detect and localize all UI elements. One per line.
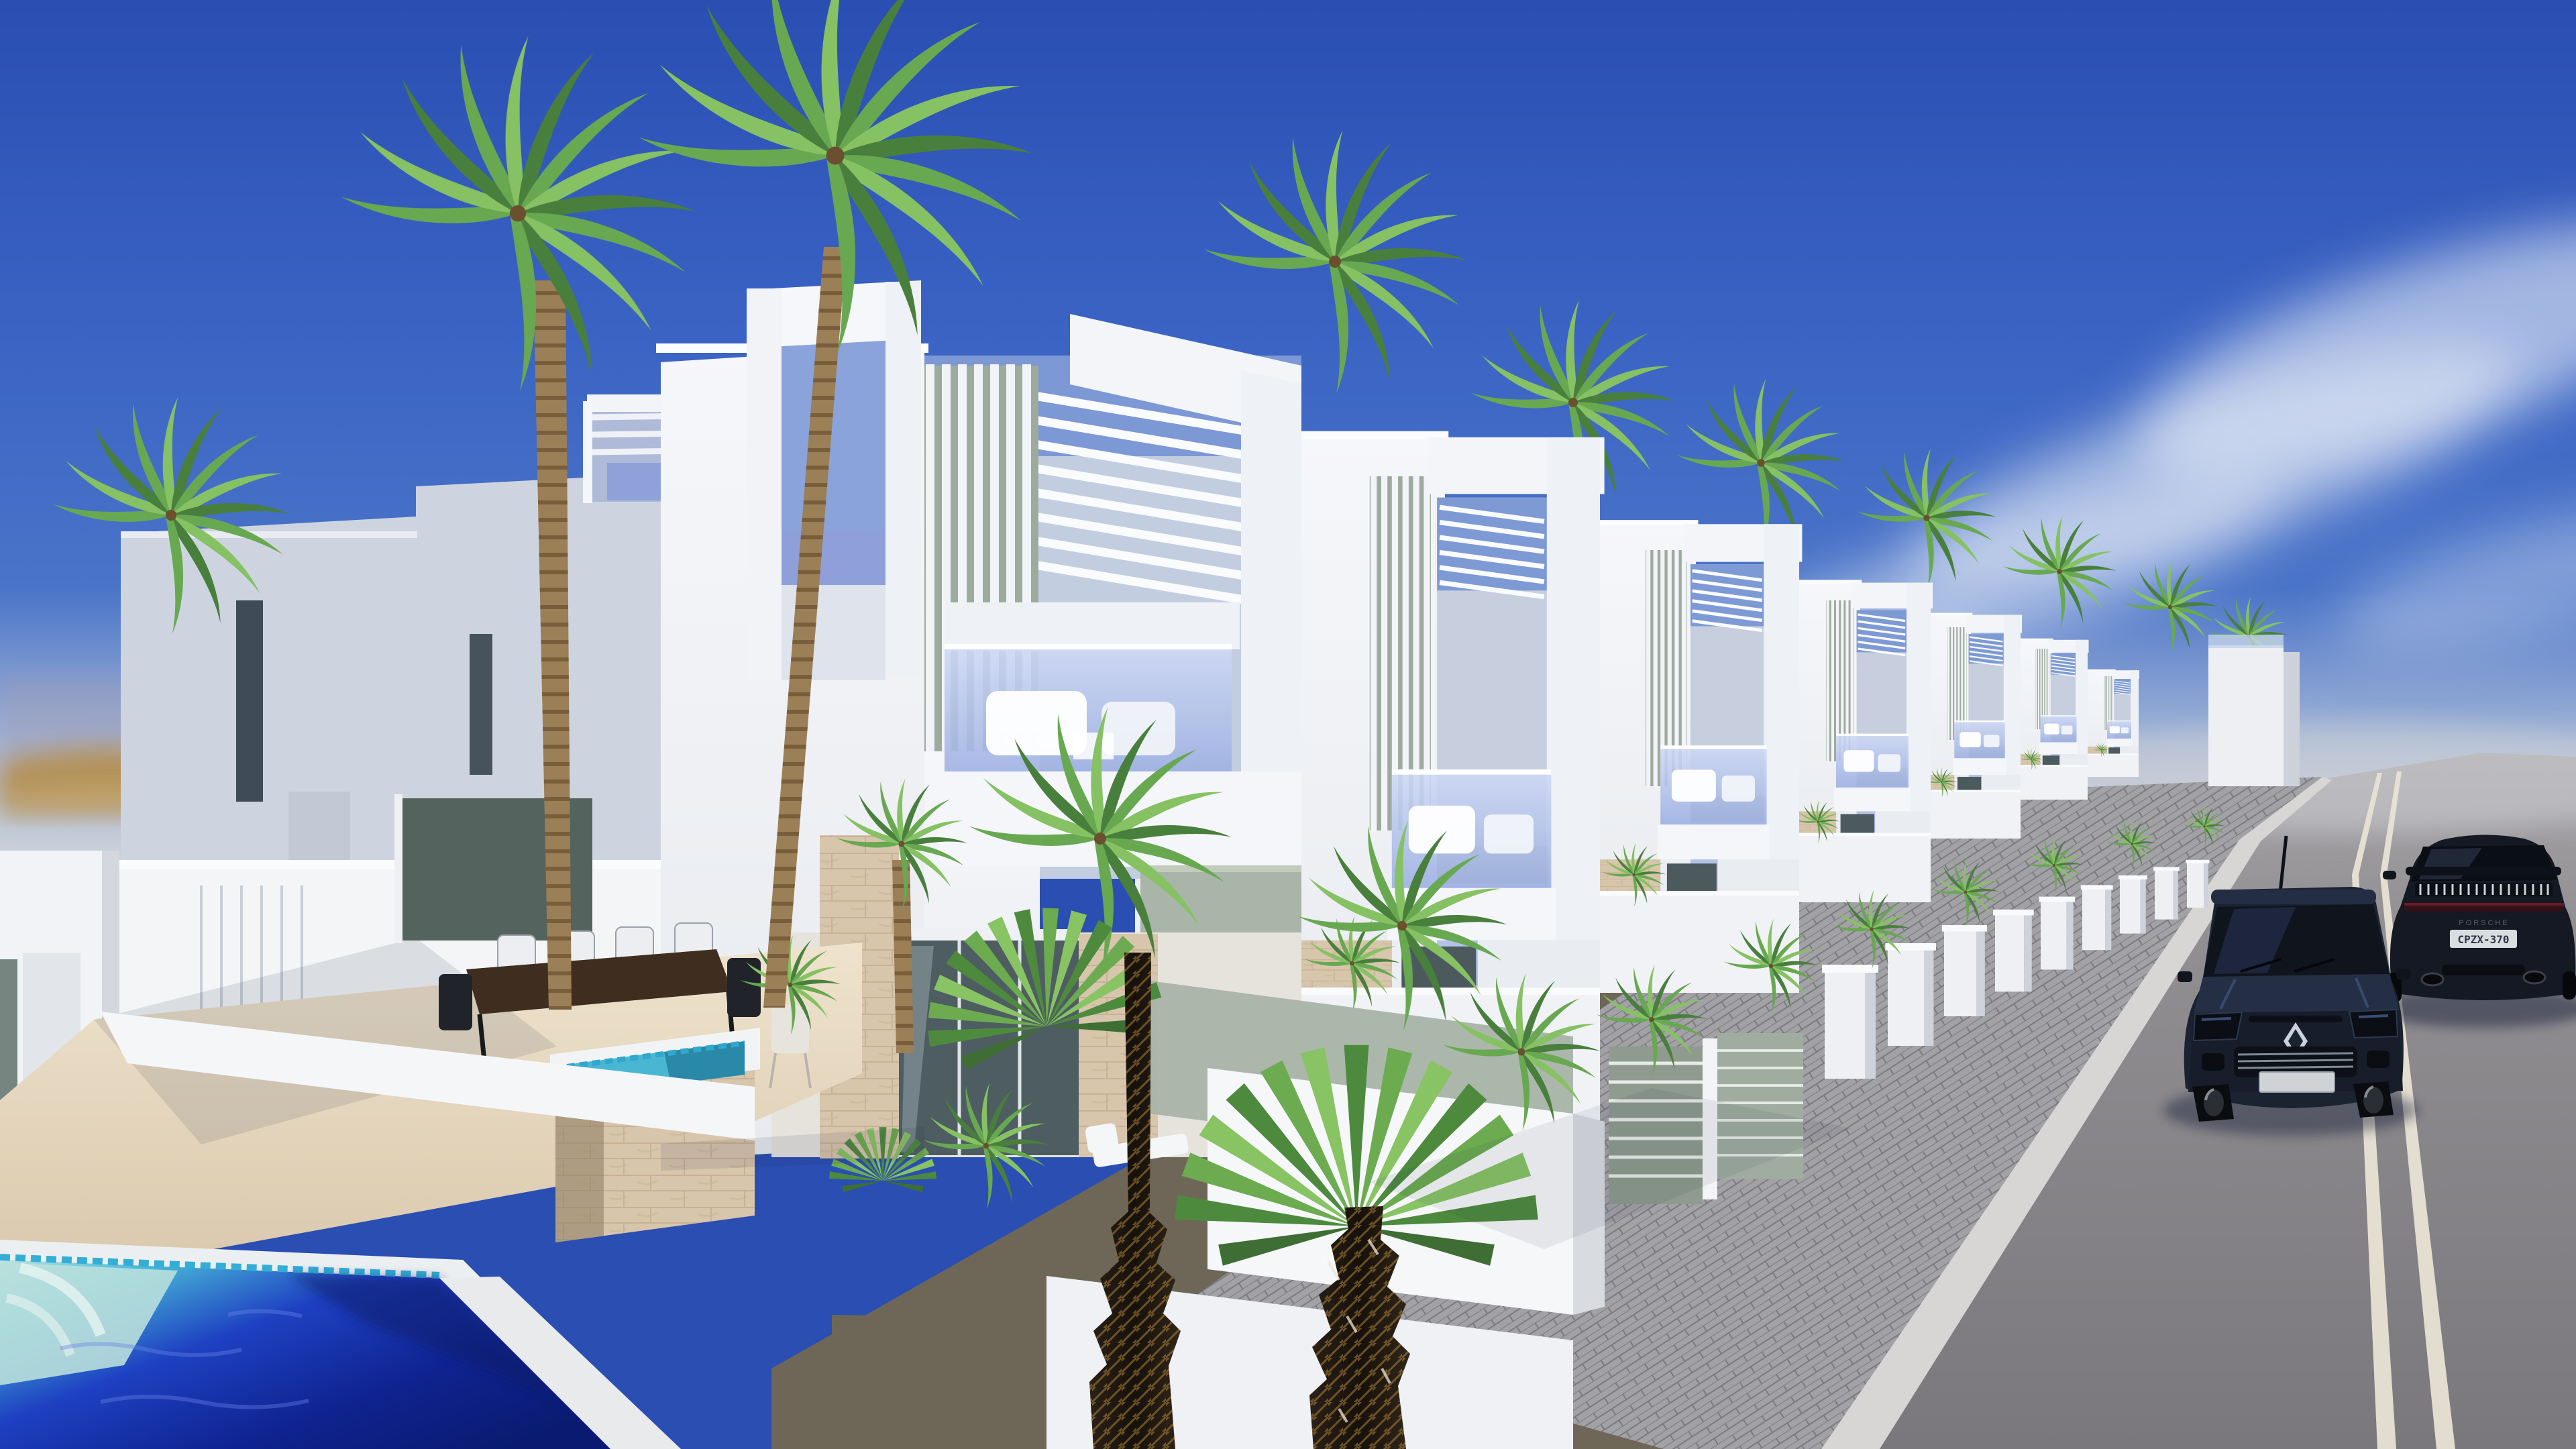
headlight [2194,1012,2242,1040]
headlight [2349,1010,2398,1038]
window [236,600,263,802]
main-pool [0,1240,681,1449]
lounge-cushions [782,530,885,590]
villa-street-rendering: PORSCHE CPZX-370 [0,0,2576,1449]
side-mirror [2396,969,2411,979]
license-plate [2259,1072,2334,1092]
glass-balcony [945,644,1232,775]
exhaust [2422,973,2443,985]
side-mirror [2383,871,2396,879]
window [470,634,492,775]
porsche-badge: PORSCHE [2459,919,2509,927]
exhaust [2524,971,2545,983]
street-end-structures [2208,635,2300,786]
side-mirror [2178,971,2192,982]
roof [2211,890,2376,904]
license-plate-text: CPZX-370 [2457,933,2509,946]
spoiler-wing [2406,867,2561,875]
balcony-sofa [986,691,1087,755]
